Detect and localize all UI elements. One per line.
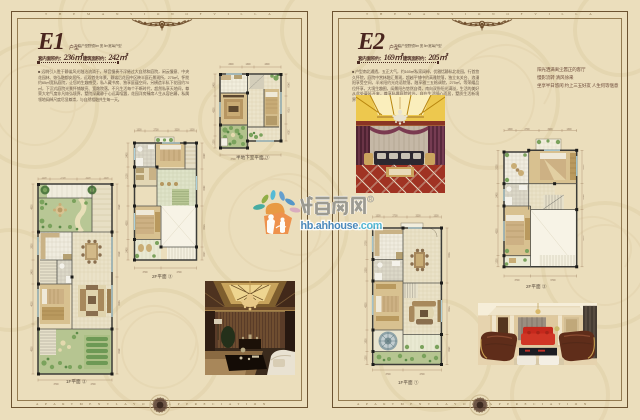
svg-text:4700: 4700 [90, 384, 96, 386]
svg-text:2200: 2200 [365, 267, 367, 273]
svg-text:2400: 2400 [31, 269, 33, 275]
svg-text:5200: 5200 [117, 300, 119, 306]
svg-text:5700: 5700 [447, 306, 449, 312]
svg-text:5700: 5700 [202, 224, 204, 230]
svg-text:3200: 3200 [547, 129, 553, 131]
svg-text:3300: 3300 [582, 164, 584, 170]
svg-text:1300: 1300 [496, 258, 498, 264]
svg-text:3200: 3200 [415, 216, 421, 218]
svg-text:2400: 2400 [496, 192, 498, 198]
svg-text:1300: 1300 [103, 178, 109, 180]
svg-text:2400: 2400 [214, 82, 216, 88]
svg-text:4700: 4700 [176, 272, 182, 274]
svg-text:1300: 1300 [136, 130, 142, 132]
svg-text:4300: 4300 [264, 64, 270, 66]
svg-text:2700: 2700 [60, 178, 66, 180]
svg-text:4200: 4200 [126, 220, 128, 226]
svg-text:1300: 1300 [566, 129, 572, 131]
svg-text:2400: 2400 [202, 153, 204, 159]
svg-text:5000: 5000 [447, 252, 449, 258]
svg-text:2700: 2700 [153, 130, 159, 132]
svg-text:1500: 1500 [447, 346, 449, 352]
svg-text:4200: 4200 [365, 302, 367, 308]
svg-text:1300: 1300 [214, 139, 216, 145]
svg-text:4000: 4000 [31, 301, 33, 307]
svg-text:2700: 2700 [524, 129, 530, 131]
svg-text:3700: 3700 [385, 374, 391, 376]
svg-text:2400: 2400 [287, 82, 289, 88]
svg-text:4700: 4700 [419, 374, 425, 376]
svg-text:3700: 3700 [53, 384, 59, 386]
svg-text:1200: 1200 [41, 178, 47, 180]
svg-text:2800: 2800 [31, 243, 33, 249]
svg-text:2400: 2400 [126, 247, 128, 253]
svg-text:3200: 3200 [85, 178, 91, 180]
svg-text:1800: 1800 [287, 129, 289, 135]
svg-text:1300: 1300 [202, 251, 204, 257]
svg-text:3700: 3700 [514, 280, 520, 282]
svg-text:3200: 3200 [174, 130, 180, 132]
svg-text:R: R [369, 197, 373, 203]
svg-text:5700: 5700 [582, 235, 584, 241]
svg-text:4800: 4800 [31, 204, 33, 210]
svg-text:3700: 3700 [142, 272, 148, 274]
svg-text:2100: 2100 [126, 173, 128, 179]
svg-text:4500: 4500 [117, 251, 119, 257]
svg-text:4200: 4200 [496, 228, 498, 234]
svg-text:1800: 1800 [365, 338, 367, 344]
svg-text:1300: 1300 [365, 355, 367, 361]
svg-text:4800: 4800 [117, 204, 119, 210]
svg-text:3300: 3300 [496, 164, 498, 170]
svg-text:1300: 1300 [245, 64, 251, 66]
svg-text:1300: 1300 [433, 216, 439, 218]
svg-text:1300: 1300 [507, 129, 513, 131]
svg-text:1300: 1300 [189, 130, 195, 132]
svg-text:2400: 2400 [582, 194, 584, 200]
svg-text:4500: 4500 [117, 348, 119, 354]
svg-text:2700: 2700 [365, 240, 367, 246]
svg-text:hb.ahhouse.com: hb.ahhouse.com [301, 220, 383, 232]
svg-text:4200: 4200 [214, 107, 216, 113]
svg-text:2600: 2600 [228, 64, 234, 66]
svg-text:2400: 2400 [126, 152, 128, 158]
svg-text:4500: 4500 [31, 346, 33, 352]
svg-text:3400: 3400 [202, 185, 204, 191]
svg-text:5700: 5700 [287, 107, 289, 113]
svg-text:6700: 6700 [550, 280, 556, 282]
